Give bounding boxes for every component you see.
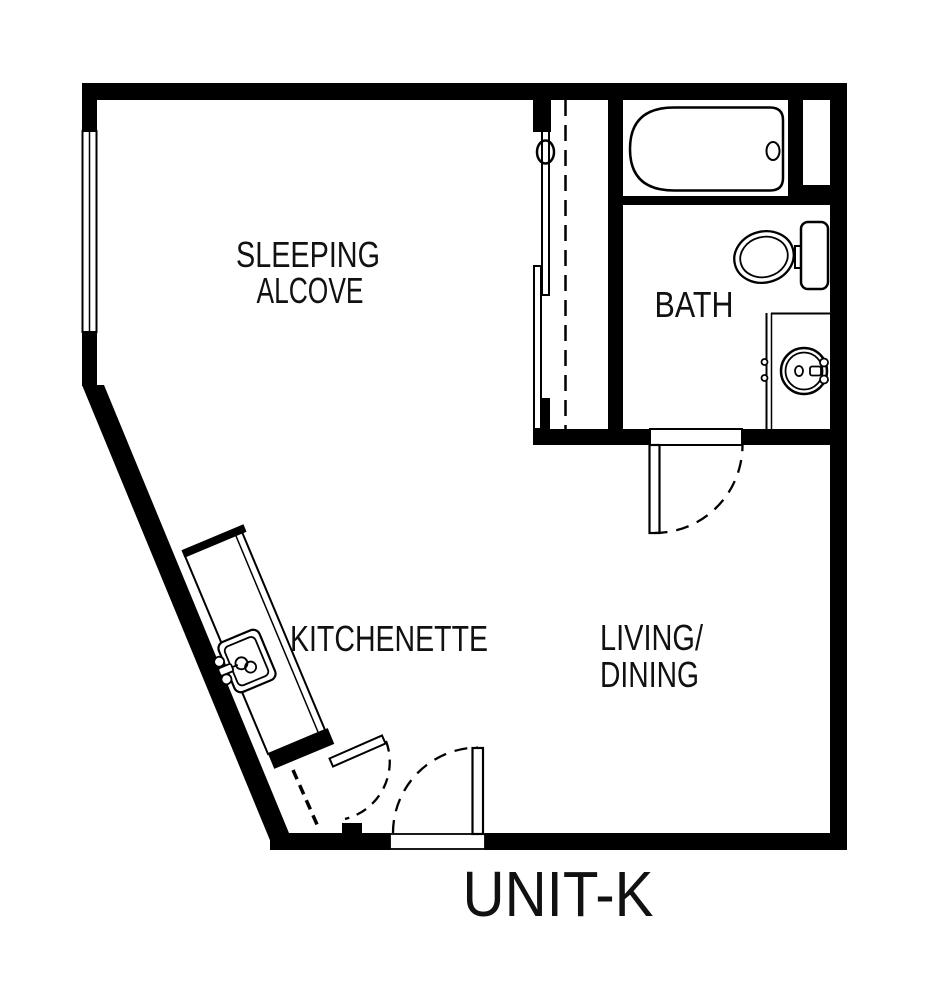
bath-label: BATH bbox=[655, 284, 734, 325]
wall-left-above-window bbox=[82, 99, 97, 131]
wall-bottom-right bbox=[485, 833, 847, 850]
floor-plan-drawing: SLEEPING ALCOVE BATH KITCHENETTE LIVING/… bbox=[0, 0, 927, 998]
tub-side-wall bbox=[788, 100, 803, 205]
bath-door bbox=[650, 429, 743, 533]
bathroom-vanity bbox=[762, 313, 831, 429]
walls bbox=[82, 83, 847, 850]
bath-south-wall-right bbox=[742, 429, 830, 445]
living-dining-label-line1: LIVING/ bbox=[600, 617, 703, 658]
bathtub-drain bbox=[767, 142, 780, 160]
bathroom-sink-drain bbox=[795, 366, 803, 376]
bathroom-faucet-body bbox=[810, 367, 821, 376]
sleeping-alcove-label-line1: SLEEPING bbox=[236, 234, 380, 275]
plan-title: UNIT-K bbox=[463, 858, 654, 930]
bath-door-swing-arc bbox=[655, 445, 743, 533]
bathroom-faucet-handle-1 bbox=[820, 359, 828, 367]
toilet bbox=[728, 222, 828, 289]
living-dining-label-line2: DINING bbox=[600, 654, 699, 695]
entry-side-stub bbox=[342, 823, 362, 835]
vanity-knob-2 bbox=[762, 375, 768, 381]
window bbox=[83, 131, 97, 332]
entry-door-swing-arc bbox=[393, 748, 478, 834]
closet-sliding-panel-1 bbox=[542, 131, 549, 295]
closet-sliding-panel-2 bbox=[534, 266, 541, 429]
wall-left-below-window bbox=[82, 332, 97, 386]
wall-niche-bottom bbox=[803, 185, 830, 205]
bathroom-faucet-handle-2 bbox=[820, 376, 828, 384]
utility-closet-dashed-front bbox=[293, 770, 319, 829]
utility-door-leaf bbox=[330, 736, 386, 767]
tub-front-band bbox=[623, 196, 803, 205]
wall-bottom-left bbox=[270, 833, 390, 850]
wall-right bbox=[830, 83, 847, 850]
closet bbox=[534, 100, 566, 429]
bath-door-frame bbox=[650, 429, 742, 445]
closet-right-wall bbox=[608, 100, 623, 429]
bathtub-outline bbox=[630, 108, 783, 191]
sleeping-alcove-label-line2: ALCOVE bbox=[257, 270, 364, 311]
bath-south-wall-left bbox=[533, 429, 650, 445]
toilet-tank bbox=[801, 222, 828, 289]
vanity-knob-1 bbox=[762, 359, 768, 365]
kitchenette-label: KITCHENETTE bbox=[290, 618, 488, 659]
wall-top bbox=[82, 83, 847, 100]
floor-plan: SLEEPING ALCOVE BATH KITCHENETTE LIVING/… bbox=[0, 0, 927, 998]
bath-door-leaf bbox=[650, 445, 660, 533]
closet-top-stub bbox=[533, 100, 551, 132]
entry-door bbox=[390, 748, 485, 850]
bathtub bbox=[630, 108, 783, 191]
entry-door-leaf bbox=[473, 748, 484, 834]
entry-door-threshold bbox=[390, 834, 485, 849]
